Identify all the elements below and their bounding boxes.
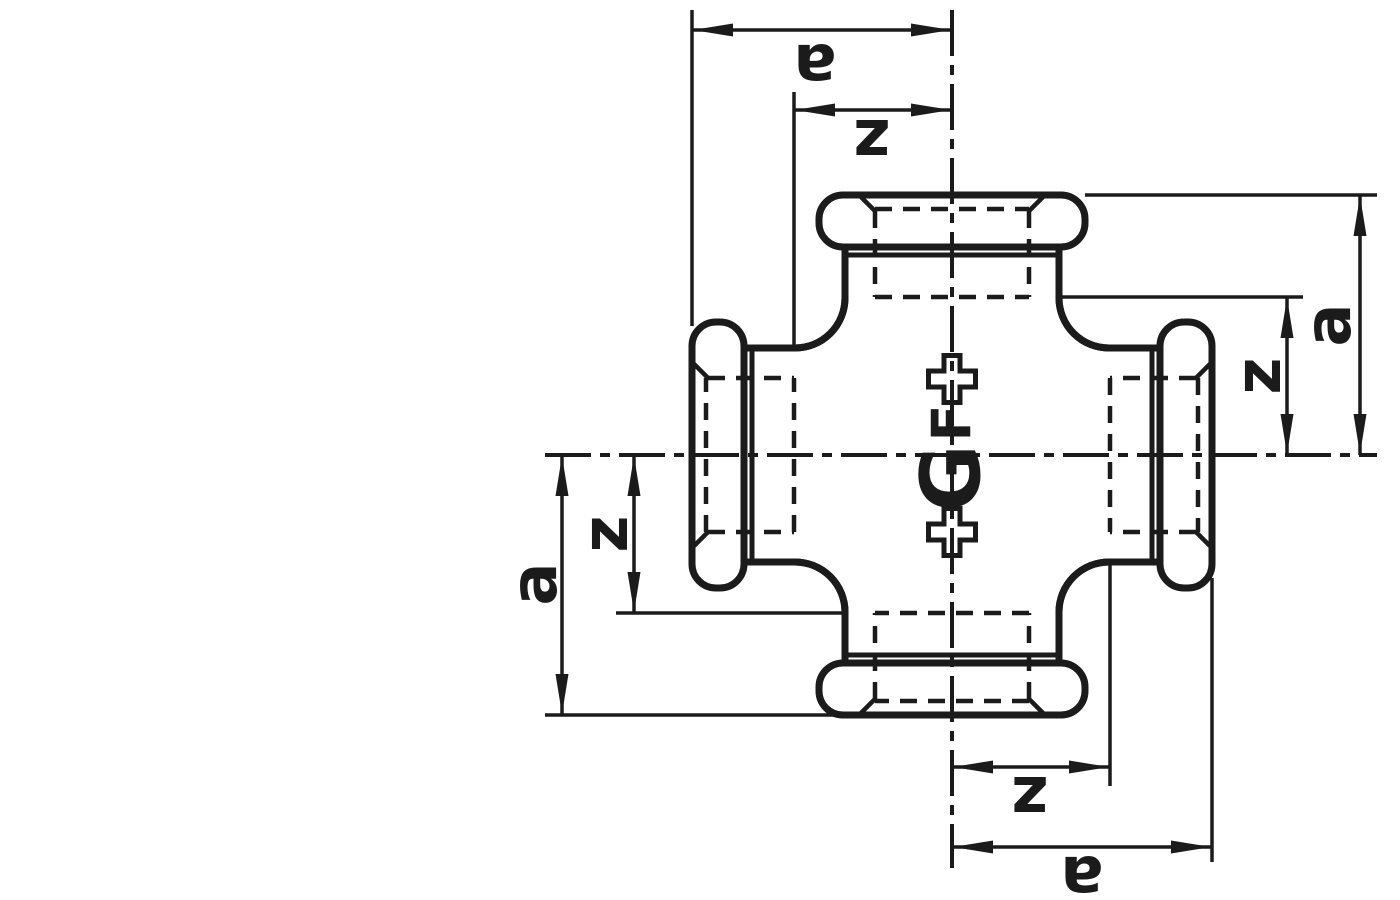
dim-label-bottom-a: a xyxy=(1060,841,1103,900)
gf-logo-letter-g: G xyxy=(905,444,1000,511)
dim-label-bottom-z: z xyxy=(1011,761,1048,835)
dim-label-left-z: z xyxy=(569,515,643,552)
technical-drawing-page: a z a z a z z a F G xyxy=(0,0,1400,900)
dim-label-right-z: z xyxy=(1222,357,1296,394)
dim-label-top-z: z xyxy=(853,104,890,178)
gf-logo-letter-f: F xyxy=(921,405,984,442)
cross-fitting-drawing: a z a z a z z a F G xyxy=(0,0,1400,900)
dim-label-left-a: a xyxy=(498,562,572,605)
dim-label-top-a: a xyxy=(793,29,836,103)
dim-label-right-a: a xyxy=(1292,303,1366,346)
